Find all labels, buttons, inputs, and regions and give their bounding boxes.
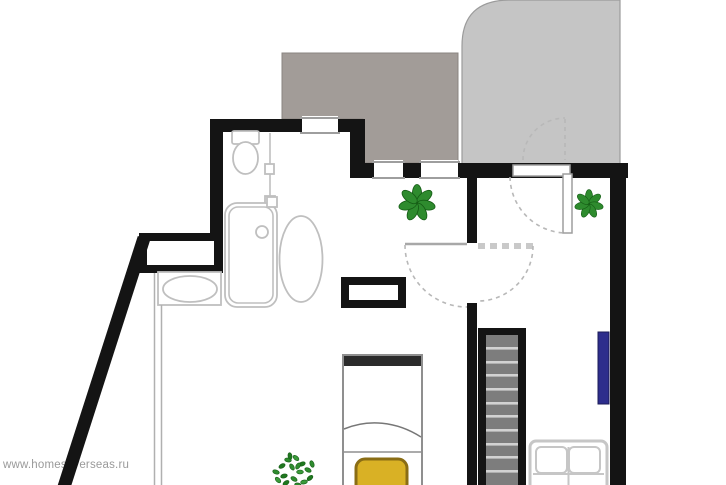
wall-interior-lower <box>467 303 477 485</box>
stair-line <box>486 429 518 432</box>
door-swing-icon-left <box>405 245 467 307</box>
stair-stringer-right <box>518 328 526 485</box>
door-swing-icon-right <box>478 246 533 301</box>
radiator-icon <box>598 332 609 404</box>
balcony-door-leaf <box>563 174 572 233</box>
stair-line <box>486 388 518 391</box>
bed-icon <box>343 355 422 485</box>
stair-line <box>486 415 518 418</box>
floor-plan-svg <box>0 0 726 485</box>
stair-stringer-left <box>478 328 486 485</box>
wall-interior-upper <box>467 178 477 243</box>
washbasin-icon-basin <box>163 276 217 302</box>
stair-top-cap <box>478 328 526 335</box>
window-icon-3 <box>419 160 460 180</box>
stair-line <box>486 470 518 473</box>
stair-line <box>486 374 518 377</box>
interior-double-door <box>405 244 533 307</box>
toilet-icon-bowl <box>233 142 258 174</box>
bed-headboard <box>344 356 421 366</box>
floor-plan-canvas: www.homesoverseas.ru <box>0 0 726 485</box>
wall-right-exterior <box>610 163 626 485</box>
partition-handle-1 <box>265 164 274 174</box>
bathtub-drain <box>256 226 268 238</box>
covered-balcony-area <box>462 0 620 165</box>
terrace-area <box>282 53 458 163</box>
stairs-icon <box>478 328 526 485</box>
bathtub-icon <box>225 203 277 307</box>
balcony-door <box>510 174 572 233</box>
oval-table <box>280 216 323 302</box>
stair-line <box>486 361 518 364</box>
plant-3-bush-icon <box>272 452 315 485</box>
bed-yellow-pillow <box>356 459 407 485</box>
bathtub-tap <box>267 197 277 207</box>
stair-line <box>486 443 518 446</box>
door-swing-icon-balcony <box>510 177 565 233</box>
stair-line <box>486 402 518 405</box>
stair-treads <box>486 335 518 485</box>
wall-niche-shaft <box>143 237 218 269</box>
window-icon-1 <box>300 116 340 135</box>
window-icon-4-balcony <box>513 165 570 176</box>
coffee-table-icon <box>345 281 402 304</box>
stair-line <box>486 347 518 350</box>
plant-2-pinwheel-icon <box>574 190 604 219</box>
stair-line <box>486 456 518 459</box>
window-icon-2 <box>372 160 405 180</box>
wall-top-bathroom <box>210 119 365 132</box>
plant-1-pinwheel-icon <box>398 185 436 222</box>
wall-diagonal-exterior <box>63 238 144 485</box>
sofa-icon <box>530 441 607 485</box>
